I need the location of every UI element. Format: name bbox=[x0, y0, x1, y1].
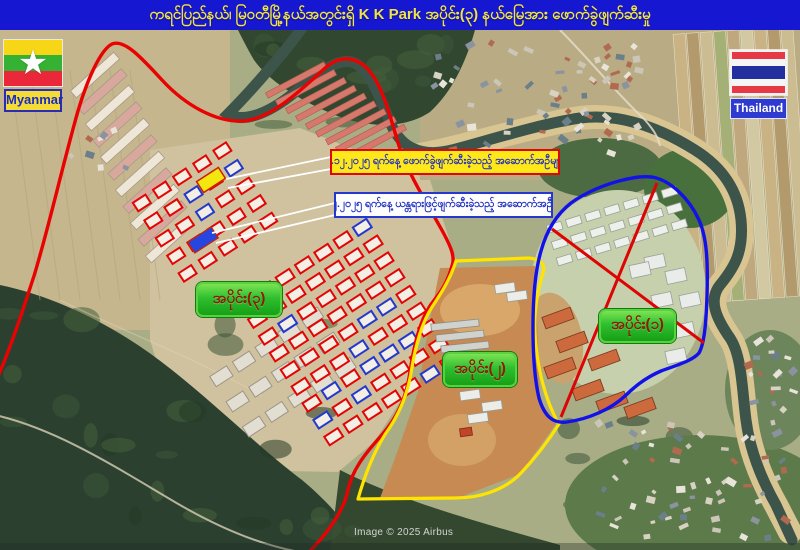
thailand-flag-white-bottom bbox=[732, 79, 785, 86]
callout-machinery: ၇.၁၂.၂၀၂၅ ရက်နေ့ ယန္တရားဖြင့်ဖျက်ဆီးခဲ့သ… bbox=[334, 192, 553, 218]
thailand-flag-blue-band bbox=[732, 66, 785, 79]
region-label-part1: အပိုင်း(၁) bbox=[599, 309, 676, 343]
callout-demolished: ၇.၁၂.၂၀၂၅ ရက်နေ့ ဖောက်ခွဲဖျက်ဆီးခဲ့သည့် … bbox=[330, 149, 560, 175]
thailand-label: Thailand bbox=[730, 98, 787, 119]
thailand-flag-red-top bbox=[732, 52, 785, 59]
bottom-shadow bbox=[0, 543, 800, 550]
star-icon: ★ bbox=[4, 40, 62, 86]
title-bar: ကရင်ပြည်နယ်၊ မြဝတီမြို့နယ်အတွင်းရှိ K K … bbox=[0, 0, 800, 30]
thailand-flag-red-bottom bbox=[732, 86, 785, 93]
thailand-flag bbox=[730, 50, 787, 95]
myanmar-flag: ★ bbox=[4, 40, 62, 86]
satellite-map bbox=[0, 0, 800, 550]
region-label-part2: အပိုင်း(၂) bbox=[443, 352, 517, 387]
region-label-part3: အပိုင်း(၃) bbox=[196, 282, 282, 317]
thailand-flag-white-top bbox=[732, 59, 785, 66]
myanmar-label: Myanmar bbox=[4, 89, 62, 112]
image-credit: Image © 2025 Airbus bbox=[354, 527, 453, 538]
kkpark-annotated-map: ကရင်ပြည်နယ်၊ မြဝတီမြို့နယ်အတွင်းရှိ K K … bbox=[0, 0, 800, 550]
